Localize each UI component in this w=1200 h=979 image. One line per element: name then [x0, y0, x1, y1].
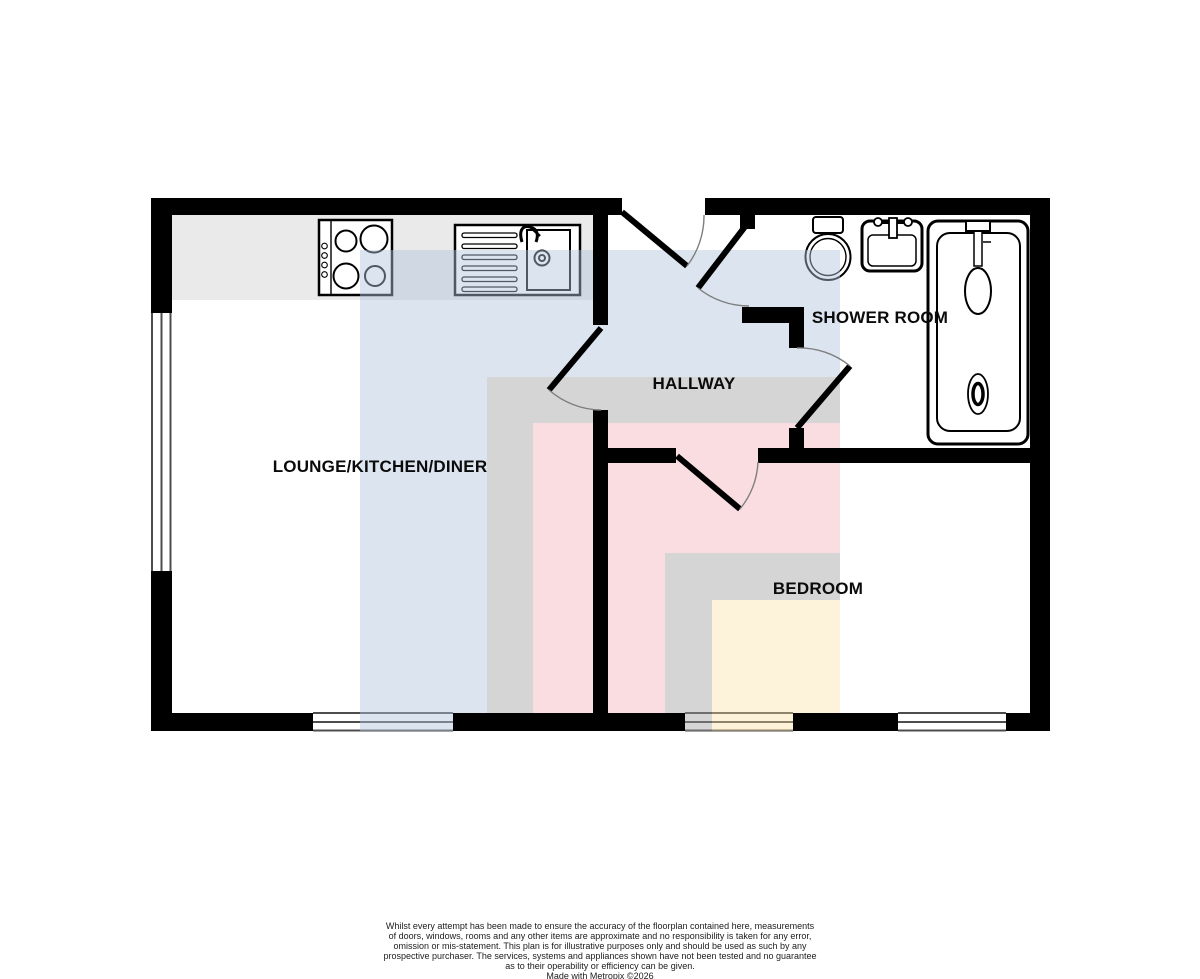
overlay-cream	[712, 600, 840, 731]
shower-bath-icon	[928, 221, 1028, 444]
wall-top-left	[151, 198, 622, 215]
disclaimer-text: Whilst every attempt has been made to en…	[0, 921, 1200, 979]
floorplan-drawing	[0, 0, 1200, 979]
room-label-bedroom: BEDROOM	[773, 579, 863, 599]
wall-bottom-1	[151, 713, 313, 731]
window-bottom-bedroom-2	[898, 711, 1006, 732]
disclaimer-line: Whilst every attempt has been made to en…	[0, 921, 1200, 931]
wall-divider-upper	[593, 215, 608, 325]
basin-icon	[862, 218, 922, 271]
disclaimer-line: of doors, windows, rooms and any other i…	[0, 931, 1200, 941]
disclaimer-line: prospective purchaser. The services, sys…	[0, 951, 1200, 961]
wall-shower-west-upper	[789, 307, 804, 348]
wall-top-right	[705, 198, 1050, 215]
window-left-wall	[150, 313, 173, 571]
wall-shower-west-stub	[789, 428, 804, 448]
wall-bedroom-top-left	[608, 448, 676, 463]
room-label-hallway: HALLWAY	[653, 374, 736, 394]
wall-right	[1030, 198, 1050, 731]
disclaimer-line: as to their operability or efficiency ca…	[0, 961, 1200, 971]
metropix-credit: Made with Metropix ©2026	[0, 971, 1200, 979]
wall-left-upper	[151, 198, 172, 313]
room-label-shower-room: SHOWER ROOM	[812, 308, 948, 328]
disclaimer-line: omission or mis-statement. This plan is …	[0, 941, 1200, 951]
wall-bottom-3	[793, 713, 898, 731]
floorplan-canvas: LOUNGE/KITCHEN/DINER HALLWAY SHOWER ROOM…	[0, 0, 1200, 979]
wall-divider-lower	[593, 410, 608, 713]
room-label-lounge-kitchen-diner: LOUNGE/KITCHEN/DINER	[273, 457, 488, 477]
wall-bottom-2	[453, 713, 685, 731]
wall-left-lower	[151, 571, 172, 731]
wall-bedroom-top-right	[758, 448, 1030, 463]
